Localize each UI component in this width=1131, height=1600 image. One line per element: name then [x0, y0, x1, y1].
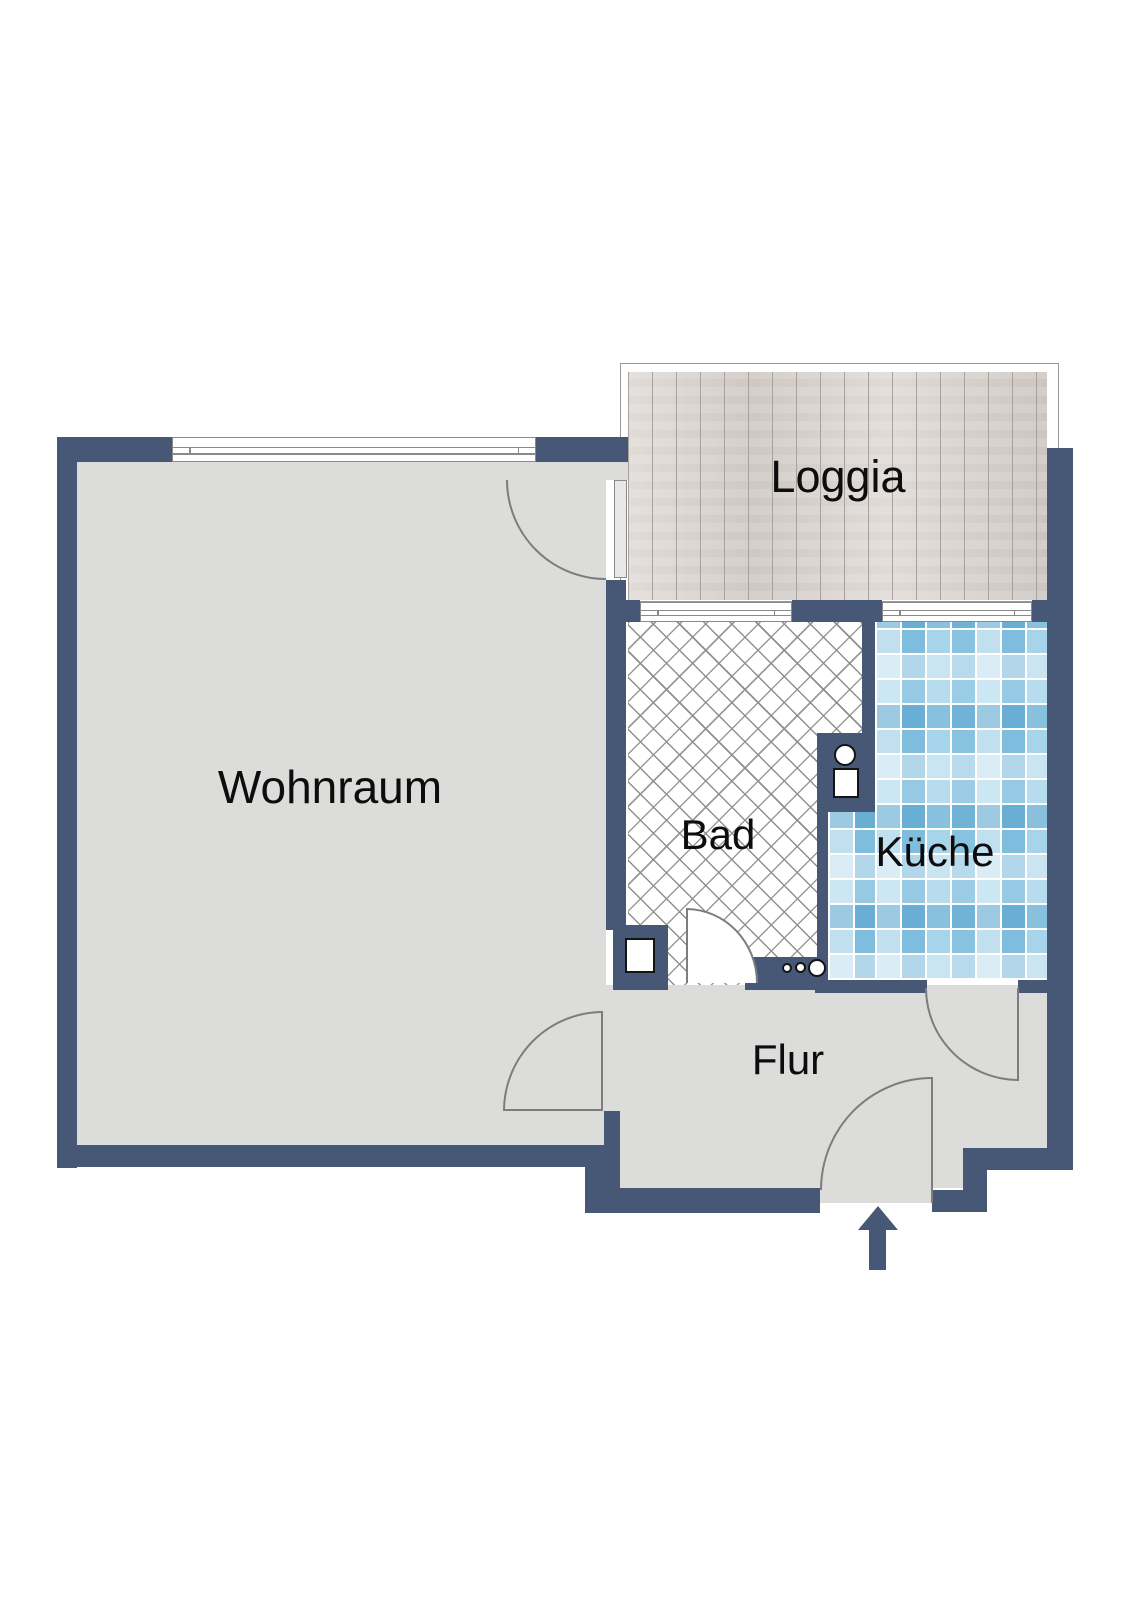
wall-bad-kueche-upper: [862, 622, 875, 733]
wohnraum-floor-door-notch: [606, 462, 628, 480]
kueche-floor-extension: [828, 812, 875, 980]
entrance-threshold: [820, 1188, 932, 1203]
wall-left: [57, 437, 77, 1168]
entrance-door-leaf: [931, 1077, 933, 1203]
window-line: [641, 610, 791, 612]
bad-circle-small-2: [795, 962, 806, 973]
window-line: [173, 453, 535, 455]
wall-under-loggia-1: [606, 600, 640, 622]
loggia-door-leaf: [614, 480, 627, 578]
bad-window: [640, 602, 792, 622]
wall-wohnraum-loggia: [606, 580, 626, 930]
window-line: [641, 615, 791, 617]
kueche-floor: [875, 622, 1047, 980]
entrance-arrow-stem: [869, 1229, 886, 1270]
flur-label: Flur: [752, 1036, 824, 1084]
wall-wohnraum-bottom: [57, 1145, 604, 1167]
wall-kueche-bottom-left: [815, 980, 927, 993]
bad-circle-large: [808, 959, 826, 977]
window-line: [883, 610, 1031, 612]
window-line: [173, 447, 535, 449]
kueche-label: Küche: [875, 828, 994, 876]
wohnraum-label: Wohnraum: [218, 760, 442, 814]
shaft-square-symbol: [833, 768, 859, 798]
window-tick: [899, 610, 901, 615]
wall-under-loggia-2: [792, 600, 882, 622]
wall-flur-left-foot: [585, 1167, 620, 1213]
window-tick: [1014, 610, 1016, 615]
loggia-label: Loggia: [770, 451, 905, 503]
window-tick: [189, 447, 191, 453]
floor-plan: Wohnraum Loggia Bad Küche Flur: [0, 0, 1131, 1600]
window-line: [883, 615, 1031, 617]
kueche-window: [882, 602, 1032, 622]
wall-step-band: [963, 1148, 1073, 1170]
bad-circle-small-1: [782, 963, 792, 973]
bad-label: Bad: [681, 811, 756, 859]
entrance-arrow-icon: [858, 1206, 898, 1230]
window-tick: [657, 610, 659, 615]
wall-right: [1047, 448, 1073, 1170]
window-tick: [518, 447, 520, 453]
wall-top-right: [536, 437, 628, 462]
wall-top-left: [57, 437, 172, 462]
wohnraum-window: [172, 437, 536, 462]
wall-flur-bottom: [617, 1188, 820, 1213]
bad-shaft-square-symbol: [625, 938, 655, 973]
wall-kueche-bottom-right: [1018, 980, 1047, 993]
shaft-circle-symbol: [834, 744, 856, 766]
window-tick: [774, 610, 776, 615]
